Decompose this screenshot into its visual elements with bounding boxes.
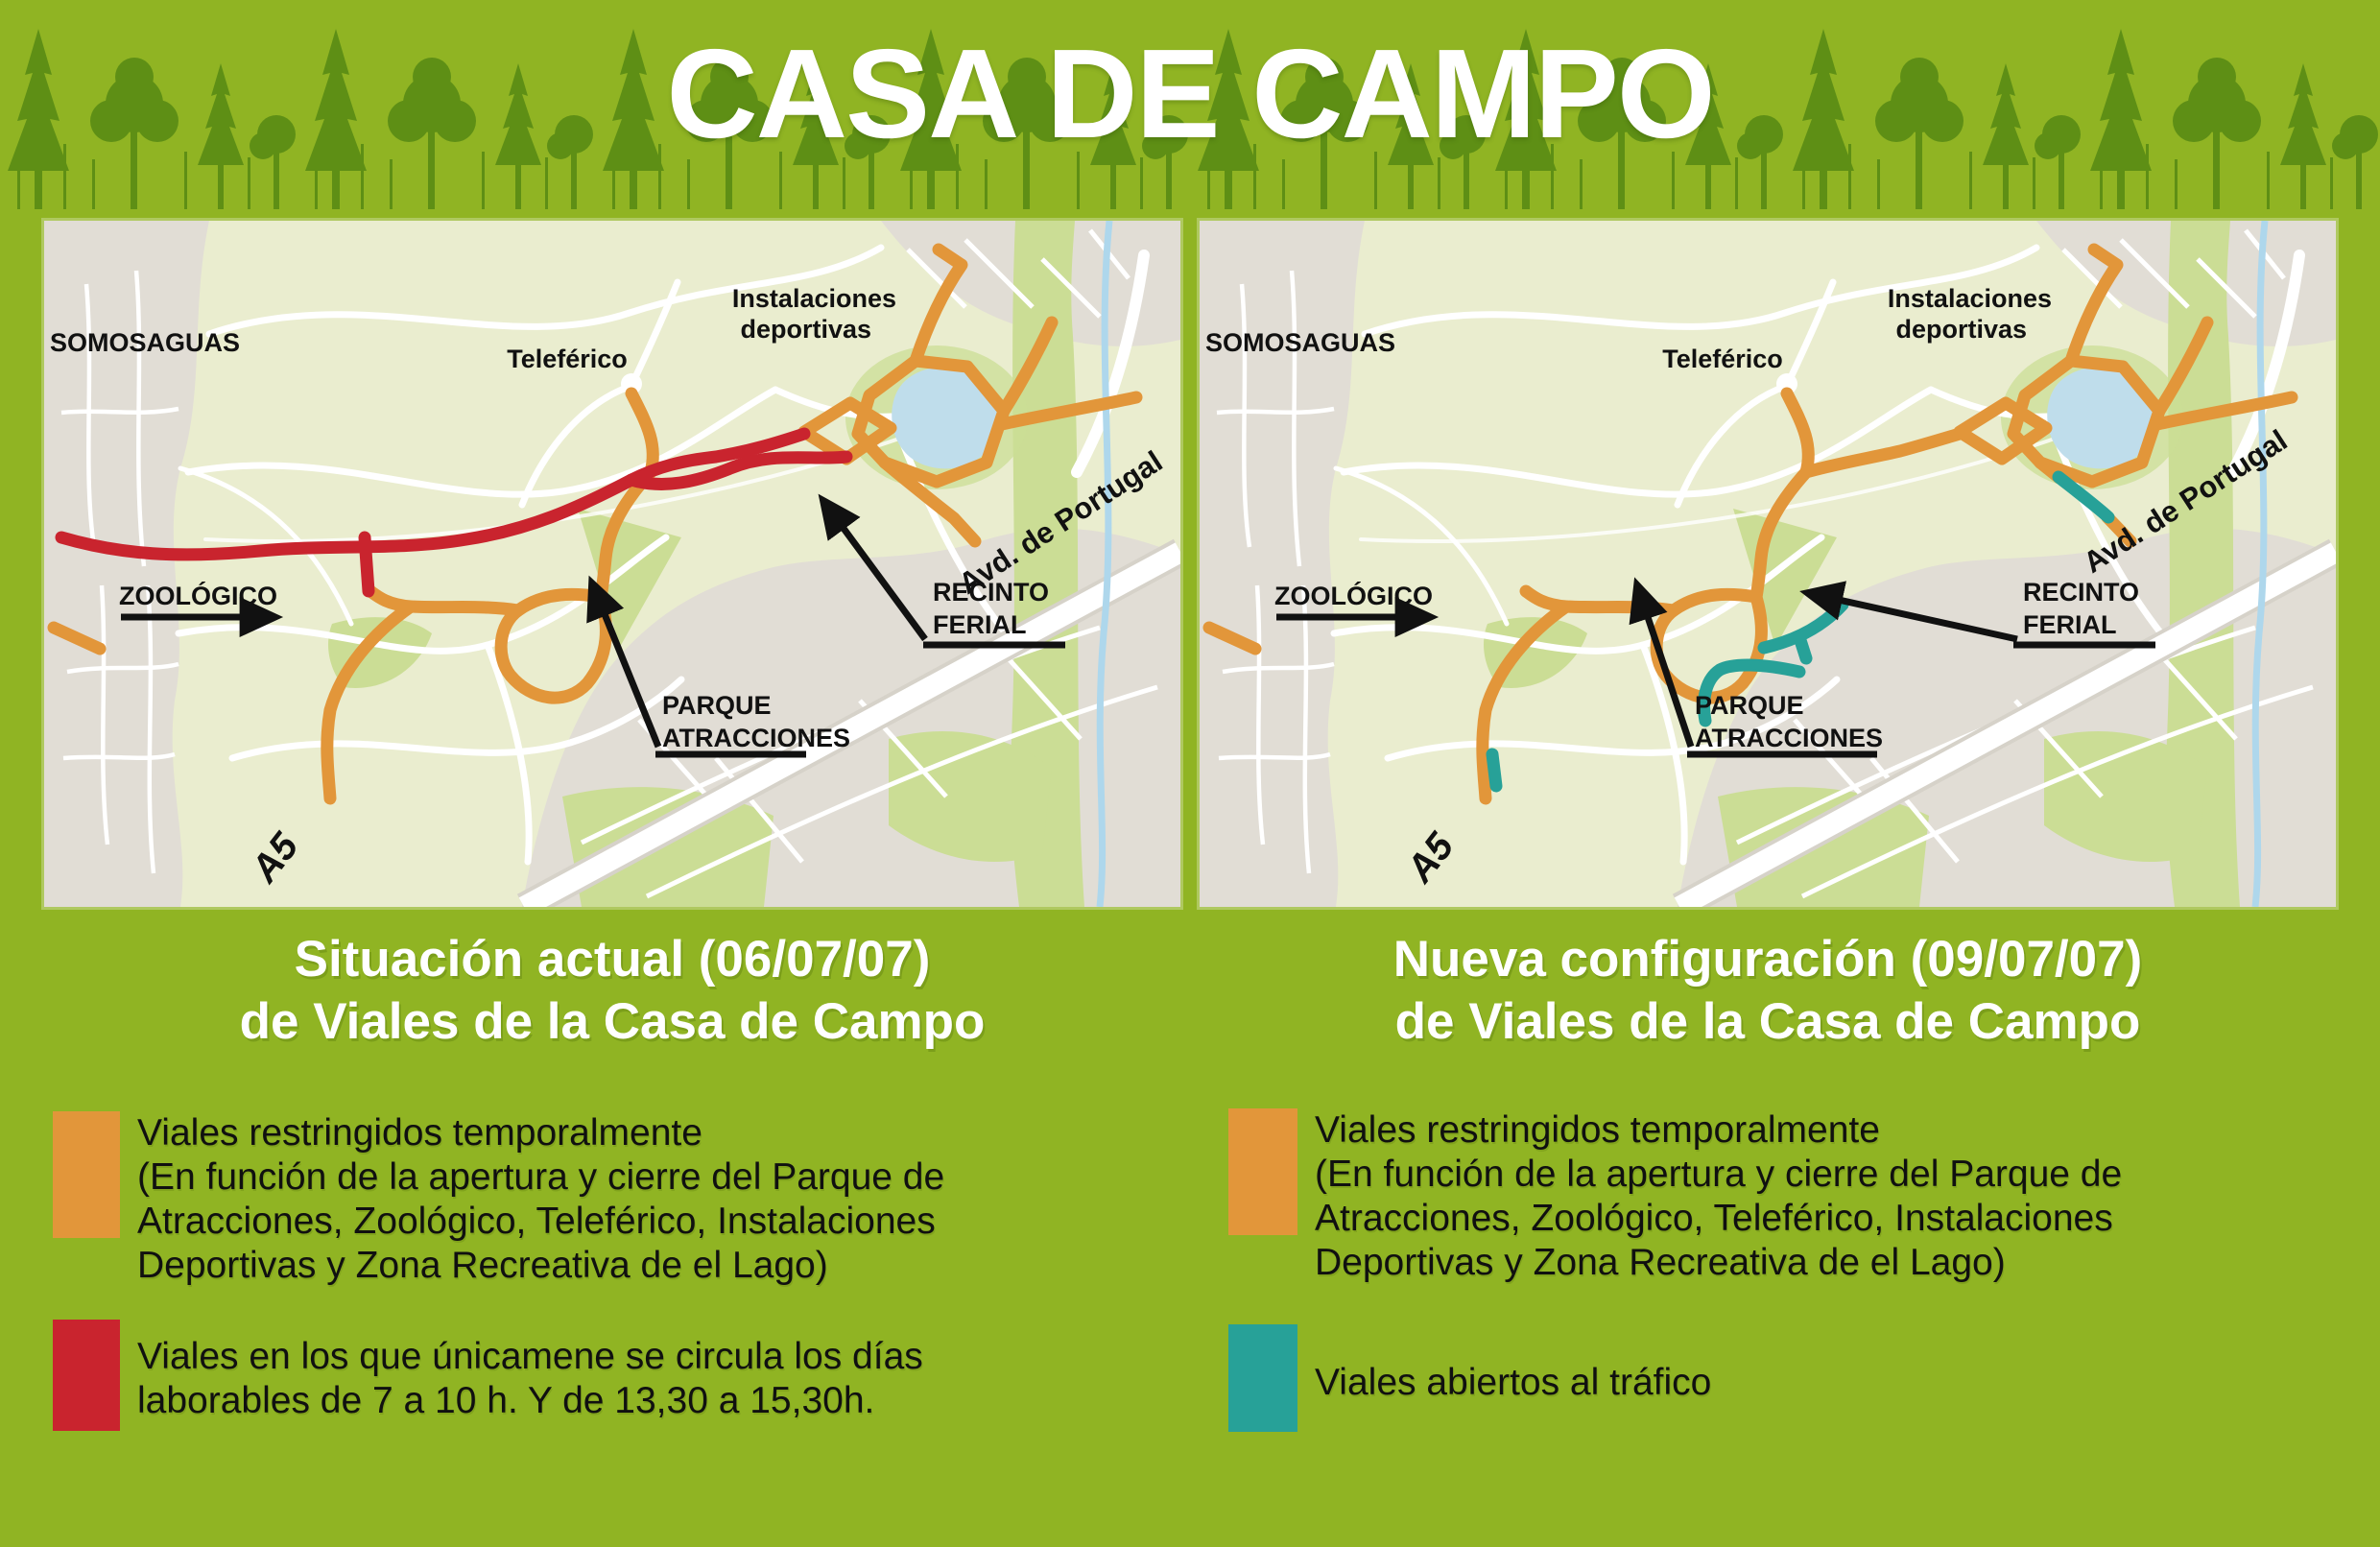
teal-swatch <box>1228 1324 1297 1432</box>
legend-restricted-right-text: Viales restringidos temporalmente (En fu… <box>1315 1108 2332 1285</box>
legend-restricted-left-text: Viales restringidos temporalmente (En fu… <box>137 1111 1154 1288</box>
label-parque-1: PARQUE <box>662 691 772 720</box>
label-recinto-1: RECINTO <box>933 578 1049 607</box>
map-new-svg: SOMOSAGUAS Instalaciones deportivas Tele… <box>1200 221 2336 907</box>
legend-line: Viales restringidos temporalmente <box>137 1111 1154 1155</box>
label-recinto-1: RECINTO <box>2023 578 2139 607</box>
subtitle-current: Situación actual (06/07/07) de Viales de… <box>44 929 1180 1053</box>
legend-line: Atracciones, Zoológico, Teleférico, Inst… <box>1315 1197 2332 1241</box>
legend-line: (En función de la apertura y cierre del … <box>1315 1153 2332 1197</box>
label-instalaciones-2: deportivas <box>1895 315 2027 344</box>
label-teleferico: Teleférico <box>507 345 628 373</box>
label-somosaguas: SOMOSAGUAS <box>1205 328 1395 357</box>
label-recinto-2: FERIAL <box>933 610 1027 639</box>
subtitle-current-line1: Situación actual (06/07/07) <box>44 929 1180 991</box>
legend-weekday-red-text: Viales en los que únicamene se circula l… <box>137 1335 1154 1423</box>
legend-line: Viales restringidos temporalmente <box>1315 1108 2332 1153</box>
orange-swatch <box>1228 1108 1297 1235</box>
subtitle-current-line2: de Viales de la Casa de Campo <box>44 991 1180 1054</box>
map-current-svg: SOMOSAGUAS Instalaciones deportivas Tele… <box>44 221 1180 907</box>
legend-restricted-right: Viales restringidos temporalmente (En fu… <box>1228 1108 2332 1285</box>
legend-open-teal: Viales abiertos al tráfico <box>1228 1324 2332 1432</box>
legend-line: Viales en los que únicamene se circula l… <box>137 1335 1154 1379</box>
legend-line: Viales abiertos al tráfico <box>1315 1361 2332 1405</box>
label-zoologico: ZOOLÓGICO <box>1274 581 1433 610</box>
legend-line: (En función de la apertura y cierre del … <box>137 1155 1154 1200</box>
legend-line: laborables de 7 a 10 h. Y de 13,30 a 15,… <box>137 1379 1154 1423</box>
red-swatch <box>53 1320 120 1431</box>
label-recinto-2: FERIAL <box>2023 610 2117 639</box>
legend-line: Atracciones, Zoológico, Teleférico, Inst… <box>137 1200 1154 1244</box>
label-somosaguas: SOMOSAGUAS <box>50 328 240 357</box>
label-teleferico: Teleférico <box>1662 345 1783 373</box>
legend-open-teal-text: Viales abiertos al tráfico <box>1315 1361 2332 1405</box>
map-new-configuration: SOMOSAGUAS Instalaciones deportivas Tele… <box>1200 221 2336 907</box>
header-banner: CASA DE CAMPO <box>0 0 2380 209</box>
legend-line: Deportivas y Zona Recreativa de el Lago) <box>137 1244 1154 1288</box>
legend-weekday-red: Viales en los que únicamene se circula l… <box>53 1320 1154 1431</box>
label-zoologico: ZOOLÓGICO <box>119 581 277 610</box>
legend-restricted-left: Viales restringidos temporalmente (En fu… <box>53 1111 1154 1288</box>
infographic-page: CASA DE CAMPO SOMOSAGUAS <box>0 0 2380 1547</box>
orange-swatch <box>53 1111 120 1238</box>
legend-line: Deportivas y Zona Recreativa de el Lago) <box>1315 1241 2332 1285</box>
label-instalaciones-1: Instalaciones <box>732 284 896 313</box>
page-title: CASA DE CAMPO <box>0 21 2380 166</box>
subtitle-new-line1: Nueva configuración (09/07/07) <box>1200 929 2336 991</box>
map-current-situation: SOMOSAGUAS Instalaciones deportivas Tele… <box>44 221 1180 907</box>
label-parque-2: ATRACCIONES <box>662 724 850 752</box>
basemap <box>1200 221 2336 907</box>
label-parque-1: PARQUE <box>1695 691 1804 720</box>
label-instalaciones-2: deportivas <box>740 315 871 344</box>
subtitle-new-line2: de Viales de la Casa de Campo <box>1200 991 2336 1054</box>
label-instalaciones-1: Instalaciones <box>1888 284 2052 313</box>
label-parque-2: ATRACCIONES <box>1695 724 1883 752</box>
subtitle-new: Nueva configuración (09/07/07) de Viales… <box>1200 929 2336 1053</box>
